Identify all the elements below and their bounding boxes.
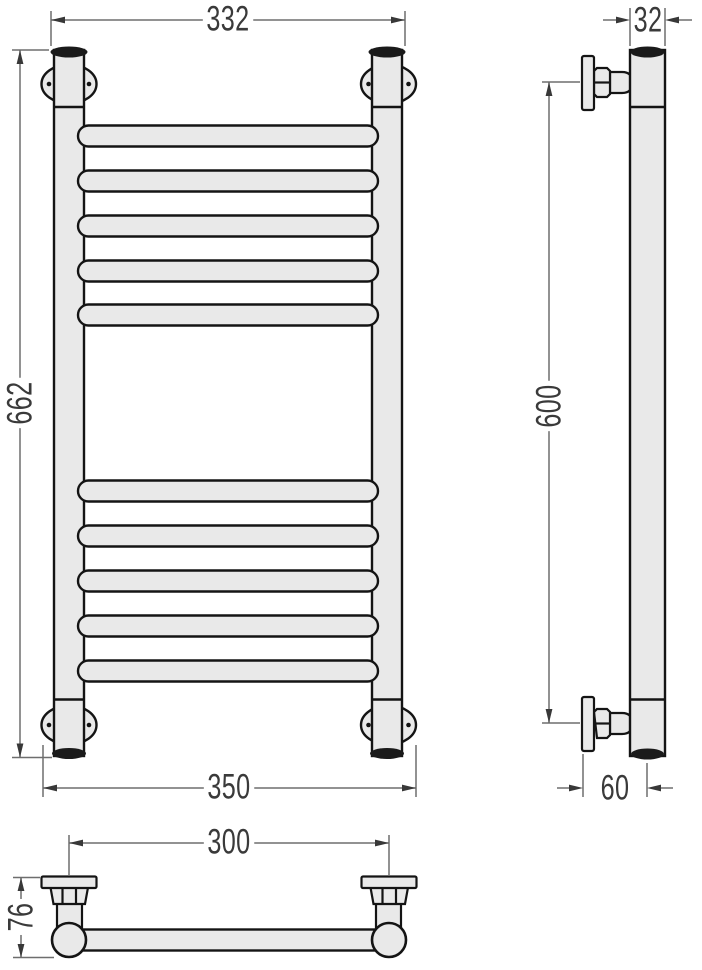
drawing-canvas (0, 0, 702, 970)
post-end-caps (51, 47, 406, 760)
dim-label-front-bottom-width: 350 (204, 769, 254, 804)
towel-rung (78, 305, 378, 326)
plan-view (42, 877, 417, 958)
plan-post-section-left (52, 923, 86, 957)
dim-label-side-wall-offset: 60 (601, 770, 630, 805)
plan-bracket-left (42, 877, 97, 929)
towel-rungs (78, 126, 378, 682)
towel-rail-technical-drawing: 332 662 350 32 600 60 300 76 (0, 0, 702, 970)
left-post (54, 50, 84, 756)
bracket-flange (582, 697, 594, 751)
dim-label-plan-depth: 76 (4, 899, 39, 935)
towel-rung (78, 216, 378, 237)
wall-bracket-top (582, 56, 633, 110)
bracket-nut (51, 888, 89, 905)
dim-label-side-tube-width: 32 (634, 2, 663, 37)
bracket-flange (362, 877, 417, 889)
dim-label-front-height: 662 (3, 378, 38, 428)
towel-rung (78, 571, 378, 592)
towel-rung (78, 526, 378, 547)
towel-rung (78, 616, 378, 637)
side-view (582, 47, 665, 760)
plan-post-section-right (372, 923, 406, 957)
dim-label-plan-bracket-spacing: 300 (204, 824, 254, 859)
towel-rung (78, 261, 378, 282)
towel-rung (78, 171, 378, 192)
towel-rung (78, 481, 378, 502)
dim-label-front-top-width: 332 (203, 1, 253, 36)
right-post (372, 50, 402, 756)
wall-escutcheons-front (42, 65, 417, 745)
post-joint-lines (54, 107, 402, 700)
side-post (630, 50, 665, 756)
bracket-flange (42, 877, 97, 889)
towel-rung (78, 126, 378, 147)
bracket-nut (371, 888, 409, 905)
dim-label-side-mount-height: 600 (532, 381, 567, 431)
plan-rung-bar (69, 930, 389, 951)
plan-bracket-right (362, 877, 417, 929)
front-view (42, 47, 417, 760)
wall-bracket-bottom (582, 697, 633, 751)
towel-rung (78, 661, 378, 682)
bracket-flange (582, 56, 594, 110)
